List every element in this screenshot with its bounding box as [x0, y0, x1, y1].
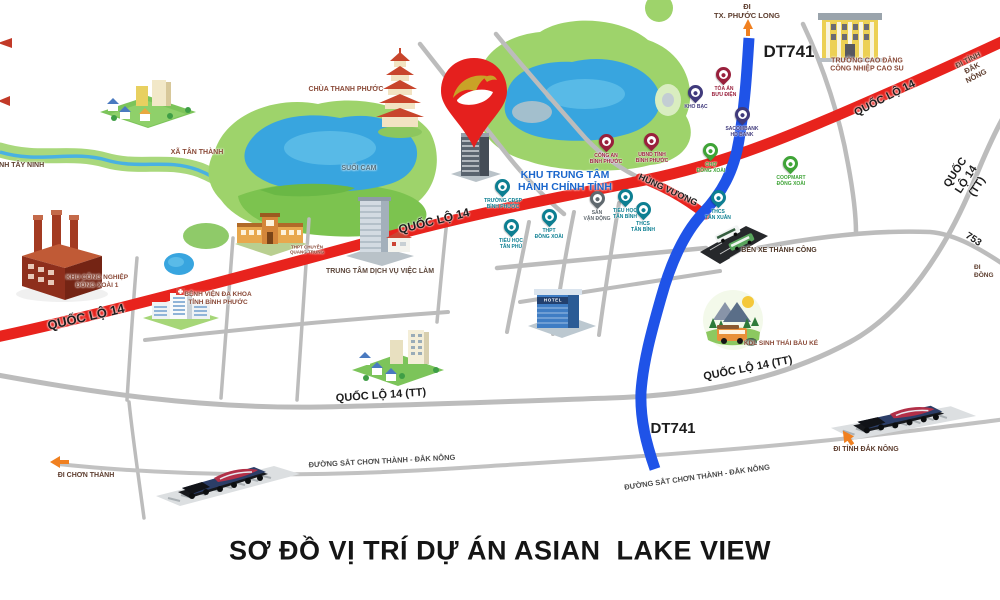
label-xa-tan-thanh: XÃ TÂN THÀNH: [171, 149, 224, 157]
direction-dong-phu: ĐI ĐỒNG: [974, 264, 1000, 280]
pin-label-tieu-hoc-tan-phu: TIỂU HỌC TÂN PHÚ: [499, 239, 523, 251]
direction-chon-thanh: ĐI CHƠN THÀNH: [58, 472, 115, 480]
label-kdl-bau-ke: KDL SINH THÁI BÀU KÉ: [744, 340, 818, 348]
direction-tay-ninh: ĐI TỈNH TÂY NINH: [0, 162, 44, 170]
pin-label-thpt-dong-xoai: THPT ĐỒNG XOÀI: [535, 229, 564, 241]
label-ben-xe: BẾN XE THÀNH CÔNG: [741, 247, 816, 255]
pin-label-ubnd-tinh: UBND TỈNH BÌNH PHƯỚC: [636, 153, 669, 165]
hotel-sign: HOTEL: [544, 298, 562, 303]
pin-label-truong-cdsp: TRƯỜNG CĐSP BÌNH PHƯỚC: [484, 199, 522, 211]
pin-label-coopmart: COOPMART ĐỒNG XOÀI: [776, 176, 805, 188]
arrow-edge-west-2-icon: [0, 96, 10, 106]
residential-south-icon: [352, 330, 444, 386]
pin-label-san-van-dong: SÂN VẬN ĐỘNG: [584, 211, 611, 223]
college-icon: [818, 13, 882, 62]
label-thpt-chuyen: THPT CHUYÊN QUANG TRUNG: [290, 245, 324, 256]
arrow-edge-west-1-icon: [0, 38, 12, 48]
label-trung-tam-viec-lam: TRUNG TÂM DỊCH VỤ VIỆC LÀM: [326, 268, 434, 276]
map-title: SƠ ĐỒ VỊ TRÍ DỰ ÁN ASIAN LAKE VIEW: [229, 536, 771, 567]
label-benh-vien: BỆNH VIỆN ĐA KHOA TỈNH BÌNH PHƯỚC: [184, 291, 251, 307]
project-marker-asian-lake-view: [440, 58, 508, 150]
label-suoi-cam: SUỐI CAM: [342, 165, 377, 173]
pin-label-sacombank: SACOMBANK HD BANK: [725, 127, 758, 139]
road-label-dt741-north: DT741: [763, 42, 814, 62]
bus-station-icon: [700, 225, 768, 264]
label-chua-thanh-phuoc: CHÙA THANH PHƯỚC: [309, 86, 384, 94]
direction-dak-nong-rail: ĐI TỈNH ĐẮK NÔNG: [833, 446, 898, 454]
arrow-phuoc-long-icon: [743, 19, 753, 36]
pin-label-tieu-hoc-tan-binh: TIỂU HỌC TÂN BÌNH: [613, 209, 637, 221]
pin-label-kho-bac: KHO BẠC: [684, 105, 707, 111]
residential-nw-icon: [100, 80, 196, 128]
project-location-map: QUỐC LỘ 14 QUỐC LỘ 14 QUỐC LỘ 14 QUỐC LỘ…: [0, 0, 1000, 600]
pin-label-cong-an: CÔNG AN BÌNH PHƯỚC: [590, 154, 623, 166]
pin-label-thcs-tan-binh: THCS TÂN BÌNH: [631, 222, 655, 234]
label-kcn-dong-xoai: KHU CÔNG NGHIỆP ĐỒNG XOÀI 1: [66, 274, 128, 290]
pin-label-cho-dong-xoai: CHỢ ĐỒNG XOÀI: [697, 163, 726, 175]
pin-label-thcs-tan-xuan: THCS TÂN XUÂN: [705, 210, 731, 222]
train-east-icon: [830, 398, 976, 448]
direction-phuoc-long: ĐI TX. PHƯỚC LONG: [714, 2, 780, 20]
label-khu-trung-tam: KHU TRUNG TÂM HÀNH CHÍNH TỈNH: [518, 169, 612, 193]
hotel-icon: [528, 289, 596, 338]
pin-label-toa-an-buu-dien: TÒA ÁN BƯU ĐIỆN: [712, 87, 737, 99]
road-label-dt741-south: DT741: [650, 420, 695, 438]
label-cao-dang-cao-su: TRƯỜNG CAO ĐẲNG CÔNG NHIỆP CAO SU: [830, 58, 903, 75]
